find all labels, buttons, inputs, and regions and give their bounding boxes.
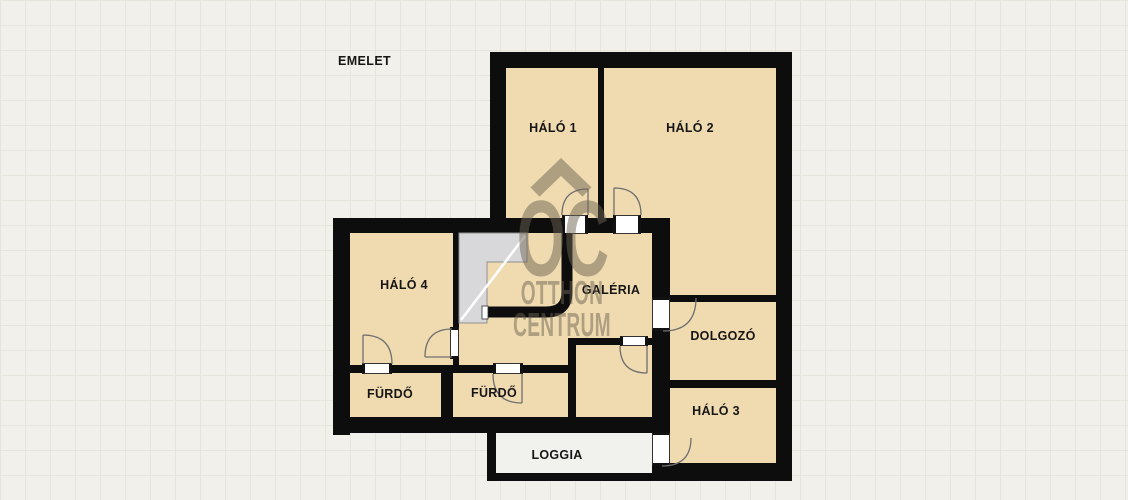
room-label-furdo-2: FÜRDŐ xyxy=(471,386,517,400)
wall-segment xyxy=(490,52,792,68)
room-label-dolgozo: DOLGOZÓ xyxy=(690,329,755,343)
wall-segment xyxy=(652,233,670,298)
wall-segment xyxy=(670,463,792,481)
plan-title: EMELET xyxy=(338,54,391,68)
wall-segment xyxy=(648,338,658,345)
door-halo-2 xyxy=(613,215,641,234)
wall-segment xyxy=(670,295,776,302)
room-label-halo-1: HÁLÓ 1 xyxy=(529,121,577,135)
wall-segment xyxy=(776,52,792,481)
floor-halo-2-upper xyxy=(604,68,776,218)
wall-segment xyxy=(641,218,670,233)
door-halo-3-loggia xyxy=(652,432,670,466)
wall-segment xyxy=(523,365,573,373)
room-label-halo-3: HÁLÓ 3 xyxy=(692,404,740,418)
room-label-loggia: LOGGIA xyxy=(531,448,582,462)
floor-plan: EMELET HÁLÓ 1 HÁLÓ 2 HÁLÓ 4 GALÉRIA DOLG… xyxy=(0,0,1128,500)
room-label-halo-4: HÁLÓ 4 xyxy=(380,278,428,292)
door-furdo-1 xyxy=(362,363,392,374)
wall-segment xyxy=(441,365,453,417)
wall-segment xyxy=(350,365,362,373)
wall-segment xyxy=(670,380,776,388)
floor-halo-3 xyxy=(670,388,776,463)
wall-segment xyxy=(652,330,670,433)
room-label-furdo-1: FÜRDŐ xyxy=(367,387,413,401)
wall-segment xyxy=(568,338,576,417)
door-halo-4 xyxy=(450,327,459,359)
floor-halo-2-lower xyxy=(670,218,776,295)
door-furdo-2 xyxy=(493,363,523,374)
wall-segment xyxy=(333,233,350,435)
wall-segment xyxy=(333,417,670,433)
wall-segment xyxy=(490,68,506,233)
door-galeria-hall xyxy=(620,336,648,346)
wall-segment xyxy=(487,473,670,481)
room-label-halo-2: HÁLÓ 2 xyxy=(666,121,714,135)
wall-segment xyxy=(453,233,459,328)
watermark-centrum: CENTRUM xyxy=(513,306,611,344)
door-dolgozo xyxy=(652,297,670,331)
